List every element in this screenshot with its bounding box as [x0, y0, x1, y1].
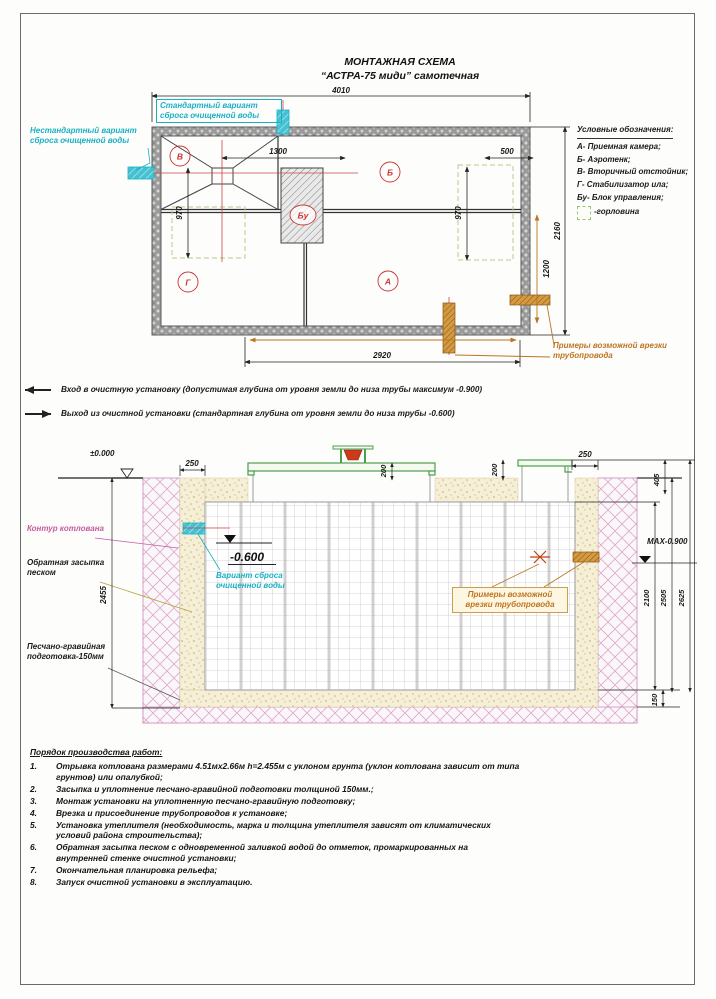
level-mark-zero-icon [121, 469, 133, 478]
vent-assembly [333, 446, 373, 463]
dim-970-left: 970 [175, 206, 184, 220]
work-order-item: 8.Запуск очистной установки в эксплуатац… [30, 877, 522, 888]
note-outlet: Выход из очистной установки (стандартная… [25, 409, 455, 419]
dim-405: 405 [652, 473, 661, 487]
dim-2160: 2160 [553, 222, 562, 241]
dim-1200: 1200 [542, 260, 551, 278]
item-text: Отрывка котлована размерами 4.51мх2.66м … [56, 761, 522, 783]
kontur-label: Контур котлована [27, 524, 132, 534]
item-text: Монтаж установки на уплотненную песчано-… [56, 796, 522, 807]
dim-2455: 2455 [99, 586, 108, 605]
nonstandard-outlet-label: Нестандартный вариант сброса очищенной в… [30, 126, 148, 146]
dim-4010: 4010 [331, 86, 350, 95]
level-900-text: МАХ-0.900 [647, 537, 688, 546]
arrow-right-icon [25, 410, 51, 418]
section-pipe-examples-label: Примеры возможной врезки трубопровода [452, 587, 568, 613]
item-number: 8. [30, 877, 56, 888]
note-inlet: Вход в очистную установку (допустимая гл… [25, 385, 482, 395]
standard-outlet-label: Стандартный вариант сброса очищенной вод… [156, 99, 282, 123]
item-text: Установка утеплителя (необходимость, мар… [56, 820, 522, 842]
work-order-item: 2.Засыпка и уплотнение песчано-гравийной… [30, 784, 522, 795]
letter-bu: Бу [298, 211, 310, 221]
legend-item: А- Приемная камера; [577, 141, 699, 154]
letter-v: В [177, 152, 183, 162]
letter-g: Г [185, 278, 191, 288]
section-inlet-pipe [573, 552, 599, 562]
item-text: Обратная засыпка песком с одновременной … [56, 842, 522, 864]
letter-a: А [384, 277, 391, 287]
podgotovka-label: Песчано-гравийная подготовка-150мм [27, 642, 139, 662]
plan-nonstandard-outlet-pipe [128, 167, 154, 179]
plan-pipe-examples-label: Примеры возможной врезки трубопровода [553, 341, 671, 361]
plan-inlet-pipe-bottom [443, 303, 455, 353]
dim-200-b: 200 [490, 463, 499, 477]
work-order-item: 4.Врезка и присоединение трубопроводов к… [30, 808, 522, 819]
item-number: 4. [30, 808, 56, 819]
item-text: Врезка и присоединение трубопроводов к у… [56, 808, 522, 819]
dim-250-left: 250 [184, 459, 199, 468]
level-600-text: -0.600 [230, 550, 264, 564]
legend-gorlovina-label: -горловина [594, 206, 639, 219]
level-zero-text: ±0.000 [90, 449, 115, 458]
dim-970-right: 970 [454, 206, 463, 220]
dim-2625: 2625 [677, 589, 686, 608]
variant-outlet-label: Вариант сброса очищенной воды [216, 571, 300, 591]
letter-b: Б [387, 168, 393, 178]
work-order-title: Порядок производства работ: [30, 747, 522, 758]
item-text: Окончательная планировка рельефа; [56, 865, 522, 876]
item-number: 7. [30, 865, 56, 876]
legend-item: Г- Стабилизатор ила; [577, 179, 699, 192]
dim-1300: 1300 [269, 147, 287, 156]
item-text: Запуск очистной установки в эксплуатацию… [56, 877, 522, 888]
item-number: 1. [30, 761, 56, 783]
dim-200-a: 200 [379, 464, 388, 478]
zasypka-label: Обратная засыпка песком [27, 558, 119, 578]
work-order-item: 3.Монтаж установки на уплотненную песчан… [30, 796, 522, 807]
dim-2505: 2505 [659, 589, 668, 608]
title-line2: “АСТРА-75 миди” самотечная [200, 70, 600, 84]
neck-symbol-icon [577, 206, 591, 220]
work-order-item: 5.Установка утеплителя (необходимость, м… [30, 820, 522, 842]
dim-250-right: 250 [577, 450, 592, 459]
drawing-sheet: МОНТАЖНАЯ СХЕМА “АСТРА-75 миди” самотечн… [0, 0, 716, 999]
note-outlet-text: Выход из очистной установки (стандартная… [61, 409, 455, 419]
title-line1: МОНТАЖНАЯ СХЕМА [200, 56, 600, 70]
dim-500: 500 [500, 147, 514, 156]
item-number: 6. [30, 842, 56, 864]
section-view: -0.600 ±0.000 МАХ-0.900 [20, 440, 710, 750]
drawing-title: МОНТАЖНАЯ СХЕМА “АСТРА-75 миди” самотечн… [200, 56, 600, 83]
item-number: 5. [30, 820, 56, 842]
legend: Условные обозначения: А- Приемная камера… [577, 124, 699, 220]
work-order-item: 1.Отрывка котлована размерами 4.51мх2.66… [30, 761, 522, 783]
work-order-item: 7.Окончательная планировка рельефа; [30, 865, 522, 876]
note-inlet-text: Вход в очистную установку (допустимая гл… [61, 385, 482, 395]
legend-gorlovina: -горловина [577, 206, 699, 220]
item-number: 3. [30, 796, 56, 807]
dim-150: 150 [650, 693, 659, 706]
dim-2100: 2100 [642, 589, 651, 608]
legend-title: Условные обозначения: [577, 124, 673, 139]
work-order-item: 6.Обратная засыпка песком с одновременно… [30, 842, 522, 864]
plan-inlet-pipe-right [510, 295, 550, 305]
dim-2920: 2920 [372, 351, 391, 360]
arrow-left-icon [25, 386, 51, 394]
legend-item: В- Вторичный отстойник; [577, 166, 699, 179]
section-outlet-pipe [183, 523, 205, 534]
work-order: Порядок производства работ: 1.Отрывка ко… [30, 747, 522, 889]
level-mark-900-icon [639, 556, 651, 563]
item-text: Засыпка и уплотнение песчано-гравийной п… [56, 784, 522, 795]
legend-item: Бу- Блок управления; [577, 192, 699, 205]
tank-lids [248, 460, 572, 475]
item-number: 2. [30, 784, 56, 795]
legend-item: Б- Аэротенк; [577, 154, 699, 167]
